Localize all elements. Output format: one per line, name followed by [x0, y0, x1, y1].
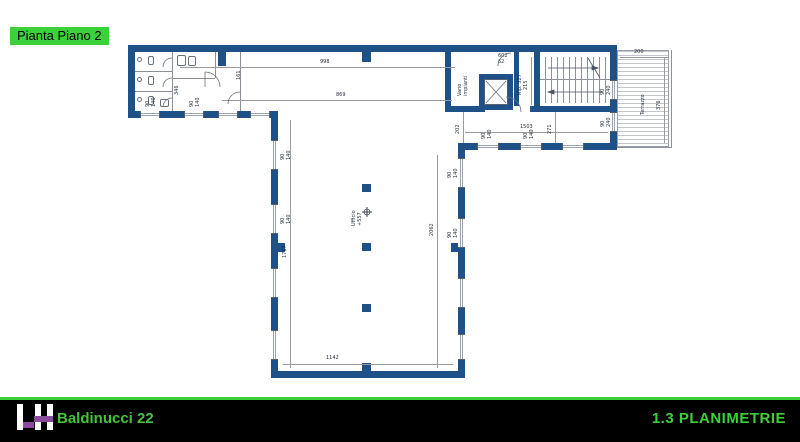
slide: Pianta Piano 2 [0, 0, 800, 442]
page-title: Pianta Piano 2 [10, 27, 109, 45]
fixture [188, 56, 196, 66]
dim-label-lobby: 271 [548, 124, 554, 134]
window [458, 334, 465, 360]
window [271, 204, 278, 234]
dimension-line [664, 57, 665, 143]
room-label-terrace: Terrazzo [641, 94, 647, 115]
dim-label-hall-right: 2062 [430, 223, 436, 236]
section-title: 1.3 PLANIMETRIE [652, 410, 786, 427]
dim-label-hall-left: 1717 [283, 245, 289, 258]
terrace-door-tag: 90 240 [601, 117, 613, 127]
window-tag: 90 140 [281, 214, 293, 224]
window-tag: 90 140 [448, 168, 460, 178]
dimension-line [180, 67, 455, 68]
dim-label-aux: 161 [237, 70, 243, 80]
window-tag: 90 140 [281, 150, 293, 160]
window-tag: 90 140 [524, 129, 536, 139]
dimension-line [620, 57, 668, 58]
elevator-cab [484, 79, 508, 105]
column [362, 243, 371, 251]
window [218, 111, 238, 118]
dim-label-aux: 346 [175, 85, 181, 95]
window-tag: 90 140 [146, 97, 158, 107]
dim-label-door: 602 62 [498, 54, 508, 66]
window [271, 268, 278, 298]
partition [172, 78, 215, 79]
dimension-line [531, 57, 532, 105]
dim-label-stair: 215 [524, 80, 530, 90]
room-label-utility: Vano impianti [458, 76, 470, 96]
dimension-line [283, 364, 453, 365]
dim-label-terrace-top: 200 [634, 50, 644, 56]
wall-segment [445, 52, 451, 112]
partition [240, 52, 241, 111]
column [362, 304, 371, 312]
terrace-rail [671, 50, 672, 147]
wall-segment [530, 106, 617, 112]
wall-segment [271, 371, 465, 378]
sink-fixture [137, 57, 142, 62]
dimension-line [437, 155, 438, 368]
partition [215, 52, 216, 78]
dim-label-bottom: 1142 [326, 356, 339, 362]
shower-fixture [177, 55, 186, 66]
column [362, 52, 371, 62]
dimension-line [463, 112, 464, 143]
window [458, 278, 465, 308]
project-name: Baldinucci 22 [57, 410, 154, 427]
stair-landing-line [540, 79, 610, 80]
dim-label-lobby-left: 202 [456, 124, 462, 134]
column [218, 52, 226, 66]
toilet-fixture [148, 56, 154, 65]
dimension-line [222, 100, 452, 101]
window [520, 143, 542, 150]
stair-treads [545, 57, 607, 103]
sink-fixture [137, 97, 142, 102]
terrace-door-tag: 90 240 [601, 85, 613, 95]
window [140, 111, 160, 118]
window-tag: 90 140 [482, 129, 494, 139]
room-label-storage: Rip. 327 [518, 74, 524, 95]
window [562, 143, 584, 150]
toilet-fixture [148, 76, 154, 85]
wall-segment [128, 45, 135, 118]
column [362, 184, 371, 192]
window-tag: 90 140 [448, 228, 460, 238]
partition [135, 91, 172, 92]
dim-label-terrace-side: 376 [657, 100, 663, 110]
room-label-office: Ufficio +557 [352, 210, 364, 226]
partition [135, 71, 172, 72]
dim-label-top: 998 [320, 60, 330, 66]
window-tag: 90 140 [190, 97, 202, 107]
partition [172, 52, 173, 111]
sink-fixture [137, 77, 142, 82]
fixture [160, 99, 169, 107]
wall-segment [128, 45, 617, 52]
footer-bar: Baldinucci 22 1.3 PLANIMETRIE [0, 397, 800, 442]
window [477, 143, 499, 150]
dimension-line [555, 112, 556, 143]
dim-label-south: 869 [336, 93, 346, 99]
column [451, 243, 458, 252]
level-marker-icon [362, 207, 372, 217]
terrace-rail [617, 147, 672, 148]
window [250, 111, 270, 118]
window [271, 140, 278, 170]
window [271, 330, 278, 360]
window [184, 111, 204, 118]
